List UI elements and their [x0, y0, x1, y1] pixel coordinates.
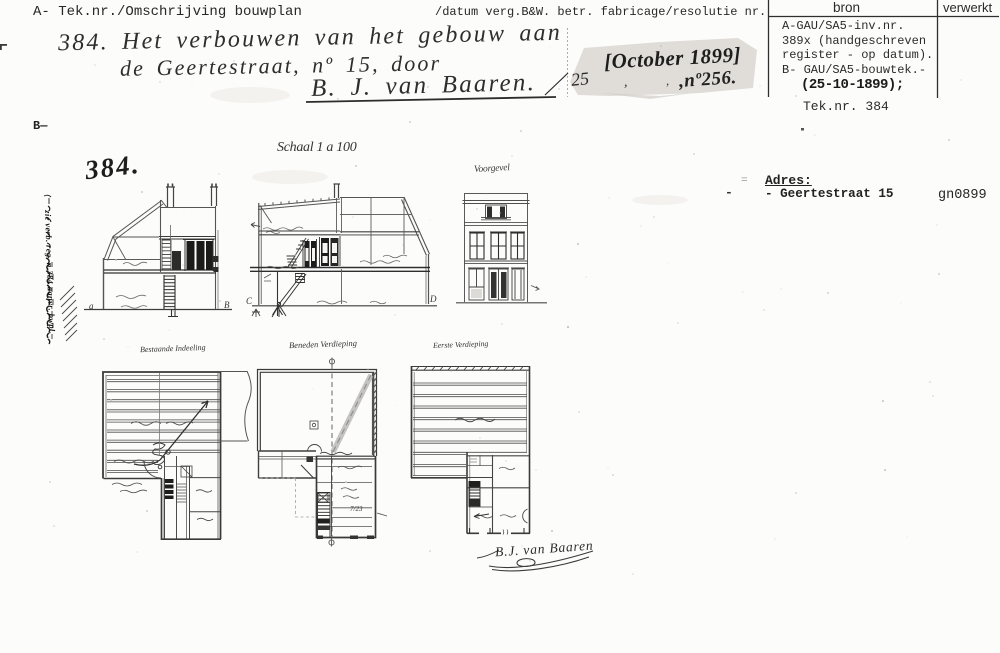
- svg-text:C: C: [246, 296, 253, 306]
- svg-text:B: B: [224, 300, 230, 310]
- svg-text:D: D: [429, 294, 437, 304]
- svg-text:7/23: 7/23: [350, 505, 363, 513]
- svg-text:a: a: [89, 301, 94, 311]
